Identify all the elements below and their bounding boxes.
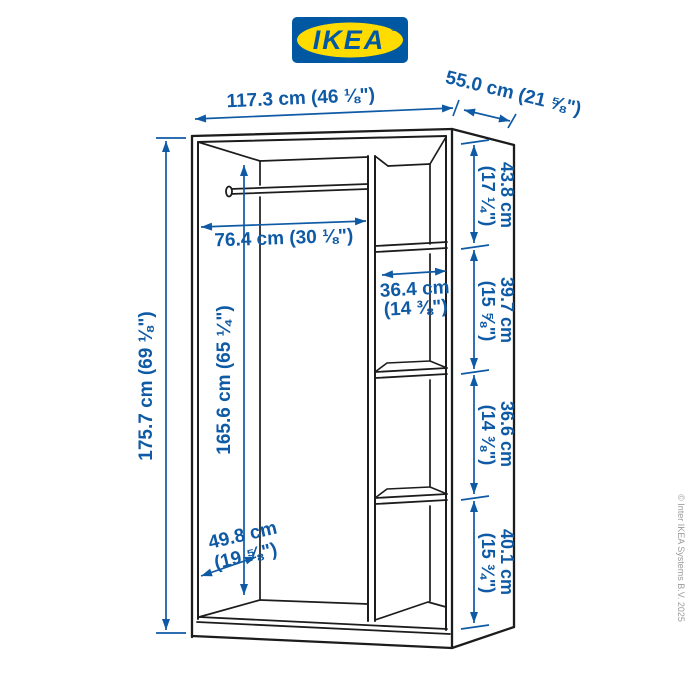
diagram-canvas: IKEA ® [0,0,700,700]
interior-top-back-edge-left [260,157,368,161]
shelf-top [375,242,447,252]
svg-text:40.1 cm: 40.1 cm [497,529,517,595]
svg-text:36.6 cm: 36.6 cm [497,401,517,467]
svg-text:(15 ¾"): (15 ¾") [478,533,498,594]
label-segment-top: 43.8 cm (17 ¼") [478,162,517,228]
plinth [192,622,452,648]
svg-text:(15 ⅝"): (15 ⅝") [478,281,498,342]
interior-top-right-diagonal-a [375,156,388,166]
side-top-edge [452,129,514,145]
label-segment-third: 36.6 cm (14 ⅜") [478,401,517,467]
svg-text:(17 ¼"): (17 ¼") [478,166,498,227]
registered-trademark-icon: ® [391,23,398,33]
dim-shelf-width [382,271,446,275]
interior-top-back-edge-right [388,164,430,166]
dim-depth [464,110,516,128]
svg-text:(14 ⅜"): (14 ⅜") [478,405,498,466]
label-shelf-width: 36.4 cm (14 ⅜") [379,277,450,320]
label-segment-bottom: 40.1 cm (15 ¾") [478,529,517,595]
ikea-dimension-diagram-page: IKEA ® [0,0,700,700]
dimension-labels: 117.3 cm (46 ⅛") 55.0 cm (21 ⅝") 175.7 c… [136,67,583,595]
label-height: 175.7 cm (69 ⅛") [136,311,157,461]
interior-top-left-diagonal [198,142,260,161]
label-depth: 55.0 cm (21 ⅝") [443,67,583,120]
svg-text:43.8 cm: 43.8 cm [497,162,517,228]
copyright-notice: © Inter IKEA Systems B.V. 2025 [676,494,686,622]
wardrobe-outline [192,129,514,648]
shelf-bottom [375,487,447,504]
shelf-middle [375,361,447,378]
label-interior-height: 165.6 cm (65 ¼") [214,305,235,455]
top-outer-edge [192,129,452,136]
label-width: 117.3 cm (46 ⅛") [226,85,375,112]
label-interior-depth: 49.8 cm (19 ⅝") [206,518,279,574]
ikea-logo-wordmark: IKEA [313,25,386,55]
label-rail-width: 76.4 cm (30 ⅛") [214,226,354,252]
label-segment-second: 39.7 cm (15 ⅝") [478,277,517,343]
clothes-rail [226,184,368,197]
top-inner-edge [198,136,446,142]
side-bottom-edge [452,627,514,648]
svg-text:(14 ⅜"): (14 ⅜") [383,296,448,320]
svg-text:39.7 cm: 39.7 cm [497,277,517,343]
dim-height [156,138,186,633]
interior-top-right-diagonal-b [430,137,446,164]
ikea-logo: IKEA ® [292,17,408,63]
